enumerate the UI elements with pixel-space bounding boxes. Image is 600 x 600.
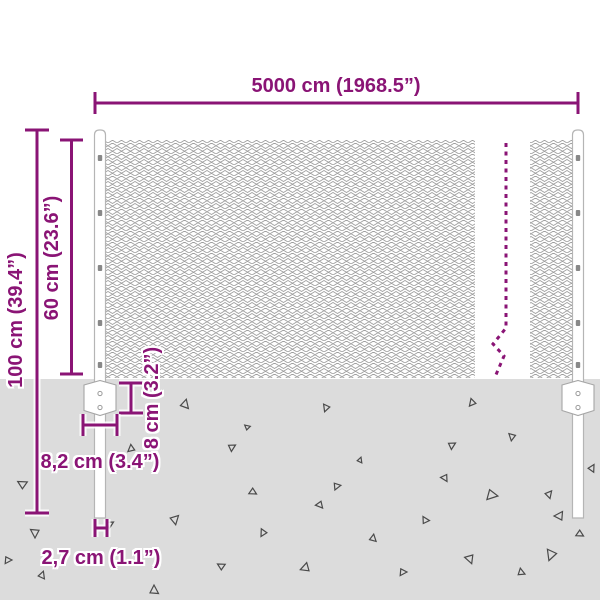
left-bracket — [84, 381, 116, 416]
break-line — [493, 143, 506, 377]
bracket-offset-dimension-label: 8 cm (3.2”) — [142, 347, 162, 449]
bracket-width-dimension-label: 8,2 cm (3.4”) — [41, 452, 160, 472]
fence-height-dimension-label: 60 cm (23.6”) — [42, 196, 62, 321]
width-dimension-label: 5000 cm (1968.5”) — [251, 76, 420, 96]
total-height-dimension-label: 100 cm (39.4”) — [6, 252, 26, 388]
product-dimension-diagram: 5000 cm (1968.5”) 100 cm (39.4”) 60 cm (… — [0, 0, 600, 600]
chain-link-mesh — [100, 140, 580, 378]
post-diameter-dimension-label: 2,7 cm (1.1”) — [42, 548, 161, 568]
fence-height-dimension-line — [60, 140, 83, 374]
right-bracket — [562, 381, 594, 416]
